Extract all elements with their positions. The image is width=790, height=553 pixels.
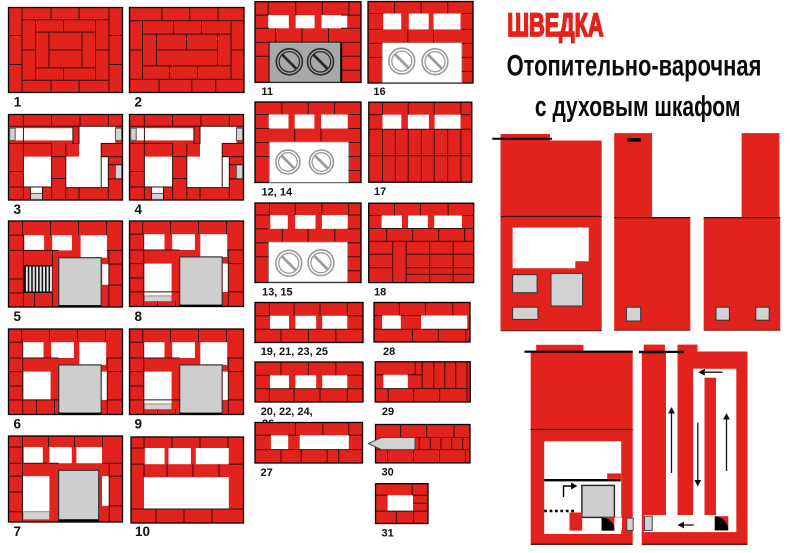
svg-text:29: 29 [382, 406, 394, 418]
svg-text:4: 4 [135, 202, 143, 217]
svg-text:7: 7 [14, 524, 22, 539]
svg-text:27: 27 [261, 467, 273, 479]
svg-text:30: 30 [382, 467, 394, 479]
svg-text:28: 28 [383, 346, 395, 358]
svg-text:13, 15: 13, 15 [262, 287, 293, 299]
svg-text:9: 9 [135, 417, 143, 432]
svg-text:20, 22, 24,: 20, 22, 24, [261, 406, 313, 418]
svg-text:18: 18 [374, 286, 386, 298]
svg-text:17: 17 [374, 186, 386, 198]
svg-text:16: 16 [373, 86, 385, 98]
svg-text:8: 8 [135, 309, 143, 324]
svg-text:с духовым шкафом: с духовым шкафом [535, 91, 741, 123]
svg-text:19, 21, 23, 25: 19, 21, 23, 25 [261, 346, 328, 358]
svg-text:ШВЕДКА: ШВЕДКА [507, 7, 603, 43]
svg-text:3: 3 [14, 202, 22, 217]
svg-text:11: 11 [261, 86, 273, 98]
svg-text:10: 10 [135, 524, 150, 539]
svg-text:12, 14: 12, 14 [262, 186, 293, 198]
svg-text:2: 2 [135, 95, 143, 110]
svg-text:1: 1 [14, 95, 22, 110]
svg-text:5: 5 [14, 309, 22, 324]
svg-text:6: 6 [14, 417, 22, 432]
svg-text:Отопительно-варочная: Отопительно-варочная [507, 50, 762, 83]
svg-text:31: 31 [382, 527, 394, 539]
